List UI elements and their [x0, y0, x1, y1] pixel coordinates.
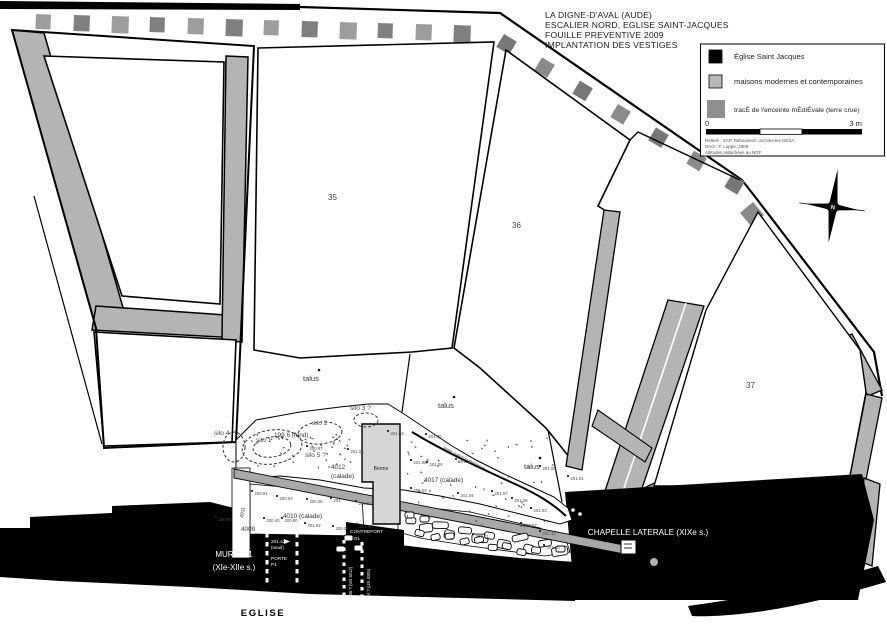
spot-elevation-dot — [251, 490, 253, 492]
spot-elevation-value: 201.08 — [515, 498, 529, 503]
spot-elevation-value: 201.16 — [547, 545, 561, 550]
sediment-dot — [273, 465, 275, 466]
talus-label: talus — [438, 401, 454, 410]
spot-elevation-value: 201.57 — [495, 491, 509, 496]
silo-label: silo 5 ? — [305, 452, 326, 459]
enceinte-square — [610, 104, 631, 125]
spot-elevation-value: 201.13 — [543, 531, 557, 536]
talus-label-dot — [539, 457, 542, 460]
spot-elevation-value: 201.03 — [391, 431, 405, 436]
sediment-dot — [531, 446, 532, 448]
sediment-dot — [530, 440, 532, 442]
spot-elevation-dot — [455, 458, 457, 460]
spot-elevation-value: 201.10 — [459, 459, 473, 464]
area-label: (calade) — [331, 473, 354, 480]
mur-mr1-period: (XIe-XIIe s.) — [213, 563, 256, 572]
enceinte-square — [339, 22, 357, 40]
sediment-dot — [533, 482, 535, 483]
stone — [458, 527, 472, 535]
spot-elevation-value: 201 — [334, 498, 342, 503]
spot-elevation-dot — [306, 445, 308, 447]
sediment-dot — [466, 440, 468, 442]
stone — [432, 522, 448, 529]
sediment-dot — [420, 456, 422, 457]
north-letter: N — [831, 205, 836, 211]
berme-label: Berme — [374, 466, 389, 472]
area-label: 4010 (calade) — [283, 513, 322, 520]
area-label: 4017 (calade) — [424, 477, 463, 484]
spot-elevation-dot — [472, 533, 474, 535]
spot-elevation-value: 200.06 — [310, 499, 324, 504]
spot-elevation-value: 201.09 — [543, 466, 557, 471]
spot-elevation-dot — [387, 430, 389, 432]
stone — [517, 548, 527, 555]
spot-elevation-dot — [567, 475, 569, 477]
porte-altitude: 201.42 — [271, 539, 286, 544]
sediment-dot — [494, 450, 496, 452]
sediment-dot — [471, 452, 473, 454]
spot-elevation-value: 200.97 — [219, 517, 233, 522]
contrefort-label-1: CONTREFORT — [350, 529, 383, 535]
stone — [531, 547, 541, 554]
site-plan-page: Berme CONTREFORT CO1 limite substrat con… — [0, 0, 887, 628]
area-label: 4012 — [331, 464, 346, 471]
spot-elevation-value: 201.01 — [476, 534, 490, 539]
sediment-dot — [450, 484, 451, 486]
title-line-2: ESCALIER NORD, EGLISE SAINT-JACQUES — [545, 20, 729, 30]
sediment-dot — [442, 497, 444, 498]
credit-line-2: DAO : F. Loppe, 2009 — [705, 144, 749, 149]
parcel-number-label: 35 — [328, 193, 337, 202]
enceinte-square — [149, 17, 165, 33]
porte-label-1: PORTE — [271, 556, 287, 561]
spot-elevation-value: 201.02 — [308, 523, 322, 528]
sediment-dot — [411, 442, 413, 443]
spot-elevation-value: 200.91 — [255, 491, 269, 496]
spot-elevation-value: 201.04 — [414, 488, 428, 493]
enceinte-square — [301, 21, 318, 38]
spot-elevation-value: 201.05 — [351, 449, 365, 454]
sediment-dot — [508, 446, 510, 448]
legend-label-maisons: maisons modernes et contemporaines — [734, 77, 863, 86]
spot-elevation-dot — [263, 517, 265, 519]
spot-elevation-dot — [304, 522, 306, 524]
spot-elevation-value: 201.04 — [461, 493, 475, 498]
legend: Église Saint Jacques maisons modernes et… — [701, 44, 885, 156]
enceinte-square — [187, 18, 204, 35]
spot-elevation-value: 201.08 — [414, 460, 428, 465]
spot-elevation-dot — [530, 507, 532, 509]
spot-elevation-dot — [355, 500, 357, 502]
silo-label: silo 3 ? — [350, 405, 371, 412]
spot-elevation-value: 201.06 — [360, 524, 374, 529]
enceinte-square — [377, 23, 393, 39]
sediment-dot — [344, 458, 345, 460]
scale-end-label: 3 m — [849, 119, 862, 128]
spot-elevation-dot — [347, 448, 349, 450]
enceinte-square — [35, 14, 51, 30]
stone — [445, 533, 454, 540]
spot-elevation-value: 201.01 — [571, 476, 585, 481]
enceinte-square — [453, 25, 471, 43]
parcel-number-label: 37 — [746, 381, 755, 390]
enceinte-square — [263, 20, 279, 36]
sediment-dot — [335, 434, 337, 435]
mur-mr1-label: MUR MR1 — [215, 550, 253, 559]
spot-elevation-dot — [543, 544, 545, 546]
area-label: 199.6 (fond) — [274, 432, 308, 439]
talus-label: talus — [524, 462, 540, 471]
parcel-35-outline — [254, 42, 494, 358]
legend-swatch-eglise — [709, 50, 722, 63]
spot-elevation-dot — [410, 487, 412, 489]
parcel-number-label: 36 — [512, 221, 521, 230]
credit-line-3: Altitudes rattachées au NGF — [705, 150, 762, 155]
stone — [405, 512, 414, 518]
porte-seuil: (seuil) — [271, 545, 284, 550]
title-line-4: IMPLANTATION DES VESTIGES — [545, 40, 678, 50]
sediment-dot — [418, 501, 420, 503]
spot-elevation-value: 201.03 — [534, 508, 548, 513]
spot-elevation-dot — [511, 497, 513, 499]
sediment-dot — [407, 515, 408, 517]
spot-elevation-dot — [410, 459, 412, 461]
spot-elevation-dot — [520, 522, 522, 524]
silo-label: silo 4 — [214, 430, 230, 437]
sediment-dot — [472, 524, 474, 525]
sediment-dot — [481, 447, 483, 449]
scale-bar — [706, 129, 862, 135]
stone — [488, 544, 498, 551]
spot-elevation-dot — [215, 516, 217, 518]
spot-elevation-dot — [426, 461, 428, 463]
spot-elevation-dot — [457, 492, 459, 494]
legend-swatch-enceinte — [707, 100, 725, 118]
sediment-dot — [497, 457, 499, 459]
legend-label-eglise: Église Saint Jacques — [734, 52, 805, 61]
sediment-dot — [486, 439, 488, 441]
spot-elevation-value: 201.07 — [524, 523, 538, 528]
spot-elevation-value: 201.05 — [429, 434, 443, 439]
eglise-label: EGLISE — [241, 608, 285, 619]
chapelle-laterale — [565, 474, 874, 600]
sediment-dot — [333, 443, 335, 444]
spot-elevation-value: 201.09 — [430, 462, 444, 467]
title-line-1: LA DIGNE-D'AVAL (AUDE) — [545, 10, 652, 20]
north-arrow-icon: N — [795, 165, 870, 246]
scale-start-label: 0 — [705, 119, 709, 128]
berme-block — [362, 424, 400, 524]
sediment-dot — [541, 481, 542, 483]
sediment-dot — [521, 506, 522, 508]
chapelle-label: CHAPELLE LATERALE (XIXe s.) — [588, 528, 709, 537]
sediment-dot — [516, 444, 518, 446]
spot-elevation-dot — [539, 530, 541, 532]
stone — [420, 516, 429, 522]
credit-line-1: Relevé : SCP Tarbouriech, architectes DE… — [705, 138, 794, 143]
spot-elevation-value: 200.06 — [336, 526, 350, 531]
talus-label-dot — [453, 396, 456, 399]
silo-label: silo 1 — [256, 437, 272, 444]
us-label-a: 4036 ? (US 4012) — [348, 566, 353, 600]
sediment-dot — [488, 513, 490, 515]
legend-label-enceinte: tracÉ de l'enceinte mÉdiÉvale (terre cru… — [734, 105, 860, 114]
enceinte-square — [111, 16, 129, 34]
spot-elevation-value: 200.02 — [280, 496, 294, 501]
sediment-dot — [546, 437, 548, 439]
left-parcel-complex — [12, 30, 254, 448]
spot-elevation-dot — [276, 495, 278, 497]
spot-elevation-dot — [356, 523, 358, 525]
porte-label-2: P1 — [271, 562, 277, 567]
site-plan-canvas: Berme CONTREFORT CO1 limite substrat con… — [0, 0, 887, 628]
spot-elevation-dot — [425, 433, 427, 435]
sediment-dot — [484, 445, 486, 447]
enceinte-square — [415, 24, 432, 41]
us-label-b: 4034 ? (US 4005) — [366, 568, 371, 602]
area-label: 4009 — [241, 526, 256, 533]
spot-elevation-value: 200.40 — [267, 518, 281, 523]
talus-label-dot — [318, 369, 321, 372]
talus-label: talus — [303, 374, 319, 383]
spot-elevation-value: 200.97 — [310, 446, 324, 451]
title-line-3: FOUILLE PREVENTIVE 2009 — [545, 30, 664, 40]
spot-elevation-dot — [491, 490, 493, 492]
legend-swatch-maisons — [709, 75, 722, 88]
enceinte-square — [73, 15, 90, 32]
sediment-dot — [507, 515, 509, 517]
sediment-dot — [475, 486, 476, 488]
spot-elevation-value: 201.54 — [359, 501, 373, 506]
silo-label: silo 2 — [312, 420, 328, 427]
enceinte-square — [225, 19, 243, 37]
spot-elevation-dot — [332, 525, 334, 527]
enceinte-square — [572, 81, 593, 102]
spot-elevation-dot — [330, 497, 332, 499]
spot-elevation-dot — [306, 498, 308, 500]
